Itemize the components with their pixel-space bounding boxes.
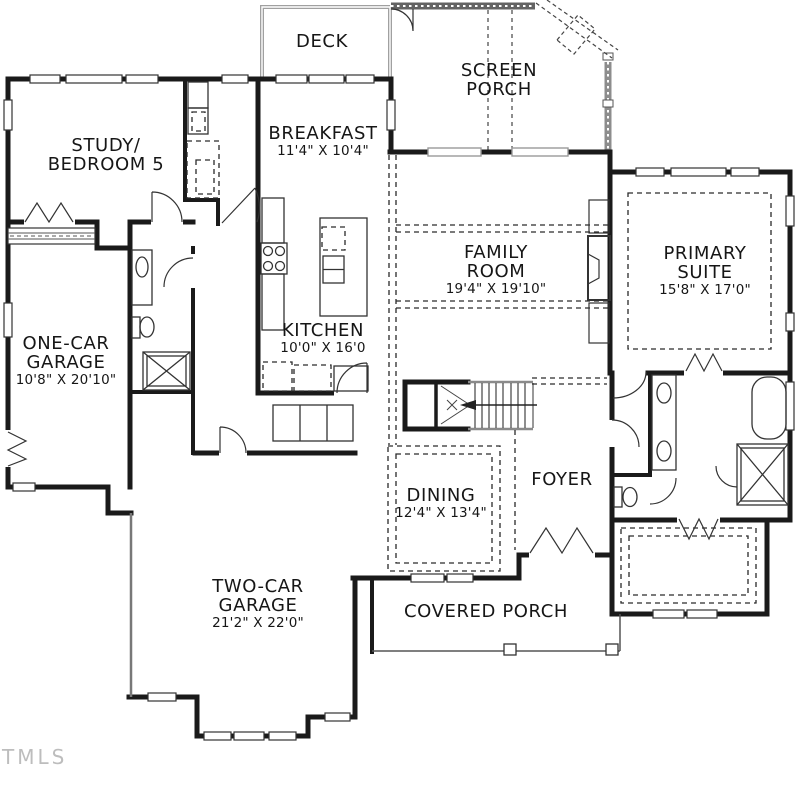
room-label-one-car-garage: ONE-CAR GARAGE 10'8" X 20'10" xyxy=(16,334,117,387)
room-label-primary-suite: PRIMARY SUITE 15'8" X 17'0" xyxy=(659,244,751,297)
room-dims: 11'4" X 10'4" xyxy=(268,144,377,158)
room-label-breakfast: BREAKFAST 11'4" X 10'4" xyxy=(268,124,377,158)
room-label-screen-porch: SCREEN PORCH xyxy=(461,61,537,99)
room-name: ROOM xyxy=(446,262,547,281)
room-name: SCREEN xyxy=(461,61,537,80)
room-name: TWO-CAR xyxy=(212,577,304,596)
room-name: ONE-CAR xyxy=(16,334,117,353)
entry-stoop xyxy=(8,228,95,244)
porch-post xyxy=(606,644,618,655)
room-name: DECK xyxy=(296,32,348,51)
room-label-family-room: FAMILY ROOM 19'4" X 19'10" xyxy=(446,243,547,296)
room-dims: 10'8" X 20'10" xyxy=(16,373,117,387)
background xyxy=(0,0,800,792)
room-name: KITCHEN xyxy=(280,321,365,340)
room-name: PORCH xyxy=(461,80,537,99)
room-name: GARAGE xyxy=(16,353,117,372)
room-name: FOYER xyxy=(531,470,592,489)
room-dims: 21'2" X 22'0" xyxy=(212,616,304,630)
room-label-covered-porch: COVERED PORCH xyxy=(404,602,568,621)
room-name: FAMILY xyxy=(446,243,547,262)
room-label-deck: DECK xyxy=(296,32,348,51)
room-name: DINING xyxy=(395,486,487,505)
porch-post xyxy=(504,644,516,655)
room-name: BEDROOM 5 xyxy=(48,155,165,174)
room-label-study: STUDY/ BEDROOM 5 xyxy=(48,136,165,174)
room-label-dining: DINING 12'4" X 13'4" xyxy=(395,486,487,520)
room-label-kitchen: KITCHEN 10'0" X 16'0 xyxy=(280,321,365,355)
room-name: COVERED PORCH xyxy=(404,602,568,621)
room-label-foyer: FOYER xyxy=(531,470,592,489)
floor-plan: DECK SCREEN PORCH STUDY/ BEDROOM 5 BREAK… xyxy=(0,0,800,792)
room-name: PRIMARY xyxy=(659,244,751,263)
room-dims: 12'4" X 13'4" xyxy=(395,506,487,520)
room-name: STUDY/ xyxy=(48,136,165,155)
room-label-two-car-garage: TWO-CAR GARAGE 21'2" X 22'0" xyxy=(212,577,304,630)
watermark: TMLS xyxy=(2,745,67,769)
room-dims: 19'4" X 19'10" xyxy=(446,282,547,296)
floor-plan-drawing xyxy=(0,0,800,792)
room-dims: 10'0" X 16'0 xyxy=(280,341,365,355)
room-name: SUITE xyxy=(659,263,751,282)
room-name: BREAKFAST xyxy=(268,124,377,143)
room-dims: 15'8" X 17'0" xyxy=(659,283,751,297)
room-name: GARAGE xyxy=(212,596,304,615)
